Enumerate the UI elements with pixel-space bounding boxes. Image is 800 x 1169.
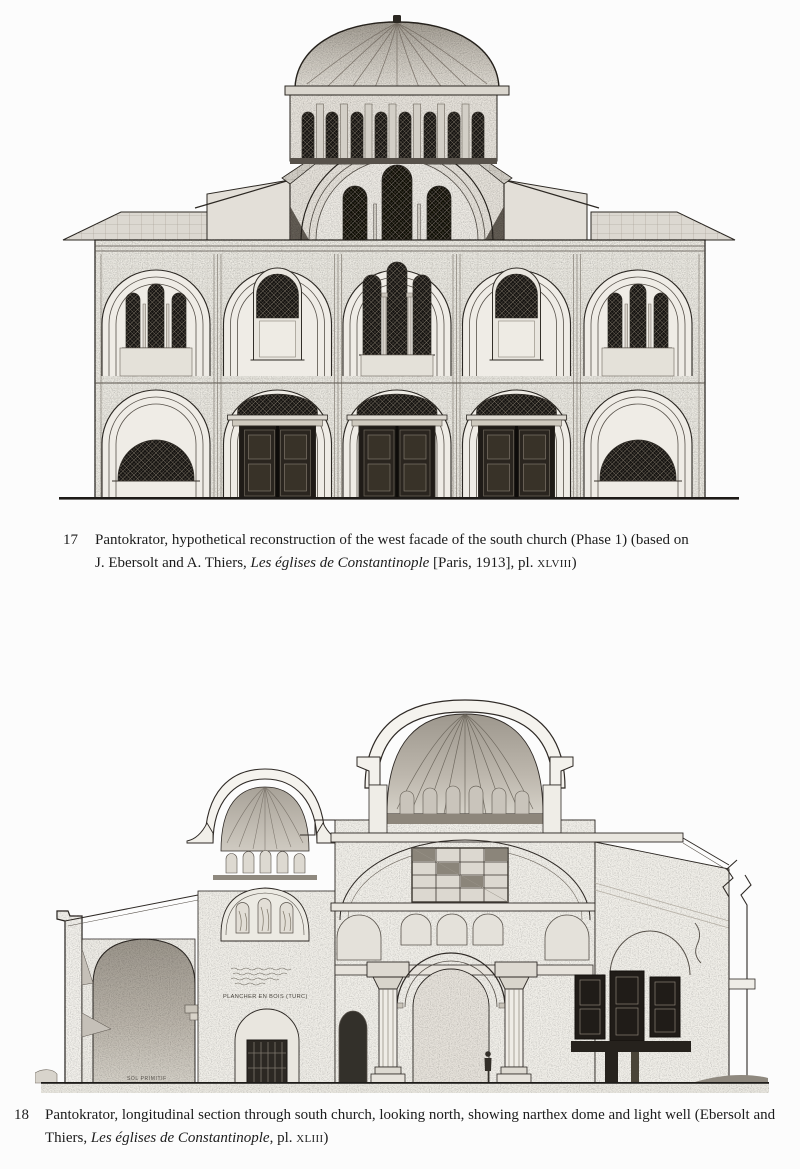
caption-plate-numeral: xlviii	[537, 555, 571, 571]
caption-line: Pantokrator, hypothetical reconstruction…	[95, 529, 689, 552]
facade-dome	[285, 15, 509, 95]
caption-line: Pantokrator, longitudinal section throug…	[45, 1104, 775, 1127]
main-dome	[357, 700, 573, 833]
ground-line	[59, 497, 739, 500]
section-left-block	[57, 895, 198, 1083]
section-drawing: PLANCHER EN BOIS (TURC)	[35, 683, 775, 1098]
narthex-lunette-windows	[236, 899, 293, 934]
caption-line: J. Ebersolt and A. Thiers, Les églises d…	[95, 552, 689, 575]
figure-17-caption-text: Pantokrator, hypothetical reconstruction…	[95, 529, 689, 575]
section-right-block	[571, 838, 755, 1083]
caption-plate-numeral: xliii	[296, 1130, 323, 1146]
annotation-sol-primitif: SOL PRIMITIF	[127, 1076, 167, 1082]
caption-book-title: Les églises de Constantinople	[91, 1130, 270, 1146]
figure-17-number: 17	[63, 529, 95, 552]
facade-drum	[290, 95, 497, 164]
narthex-drum-windows	[226, 851, 305, 874]
facade-wall	[95, 240, 705, 498]
figure-18-caption: 18 Pantokrator, longitudinal section thr…	[14, 1104, 800, 1150]
book-page: 17 Pantokrator, hypothetical reconstruct…	[0, 0, 800, 1169]
figure-18-caption-text: Pantokrator, longitudinal section throug…	[45, 1104, 775, 1150]
annotation-plancher: PLANCHER EN BOIS (TURC)	[223, 994, 308, 1000]
figure-17-caption: 17 Pantokrator, hypothetical reconstruct…	[63, 529, 753, 575]
facade-drawing	[57, 8, 741, 500]
caption-line: Thiers, Les églises de Constantinople, p…	[45, 1127, 775, 1150]
figure-18-number: 18	[14, 1104, 45, 1127]
narthex-grille-door	[247, 1040, 287, 1083]
caption-book-title: Les églises de Constantinople	[251, 555, 430, 571]
